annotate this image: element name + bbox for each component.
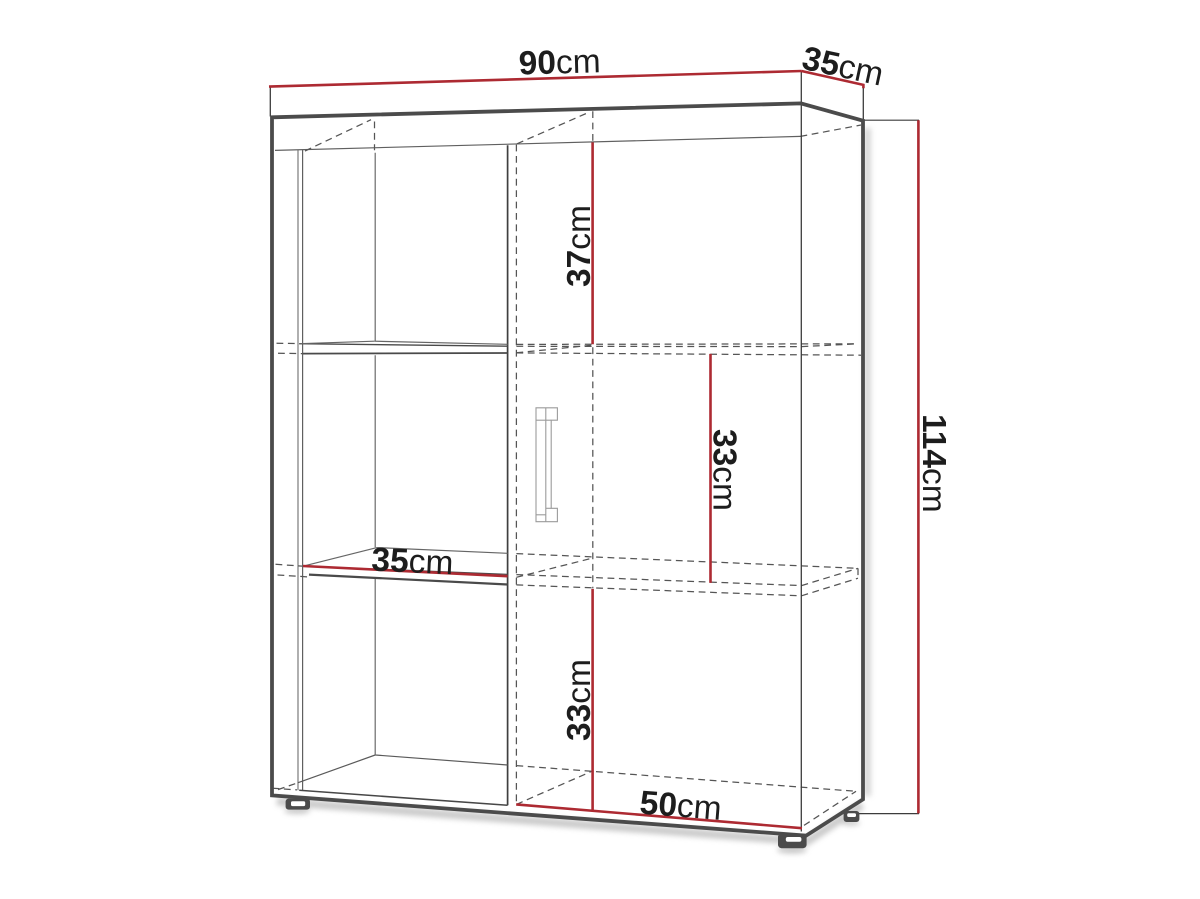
svg-text:50cm: 50cm <box>638 785 723 828</box>
svg-text:35cm: 35cm <box>799 40 887 93</box>
svg-text:90cm: 90cm <box>518 43 601 82</box>
svg-text:33cm: 33cm <box>706 429 743 511</box>
svg-text:37cm: 37cm <box>561 205 598 287</box>
svg-text:114cm: 114cm <box>915 414 952 513</box>
svg-text:35cm: 35cm <box>371 542 455 583</box>
svg-text:33cm: 33cm <box>561 659 598 741</box>
